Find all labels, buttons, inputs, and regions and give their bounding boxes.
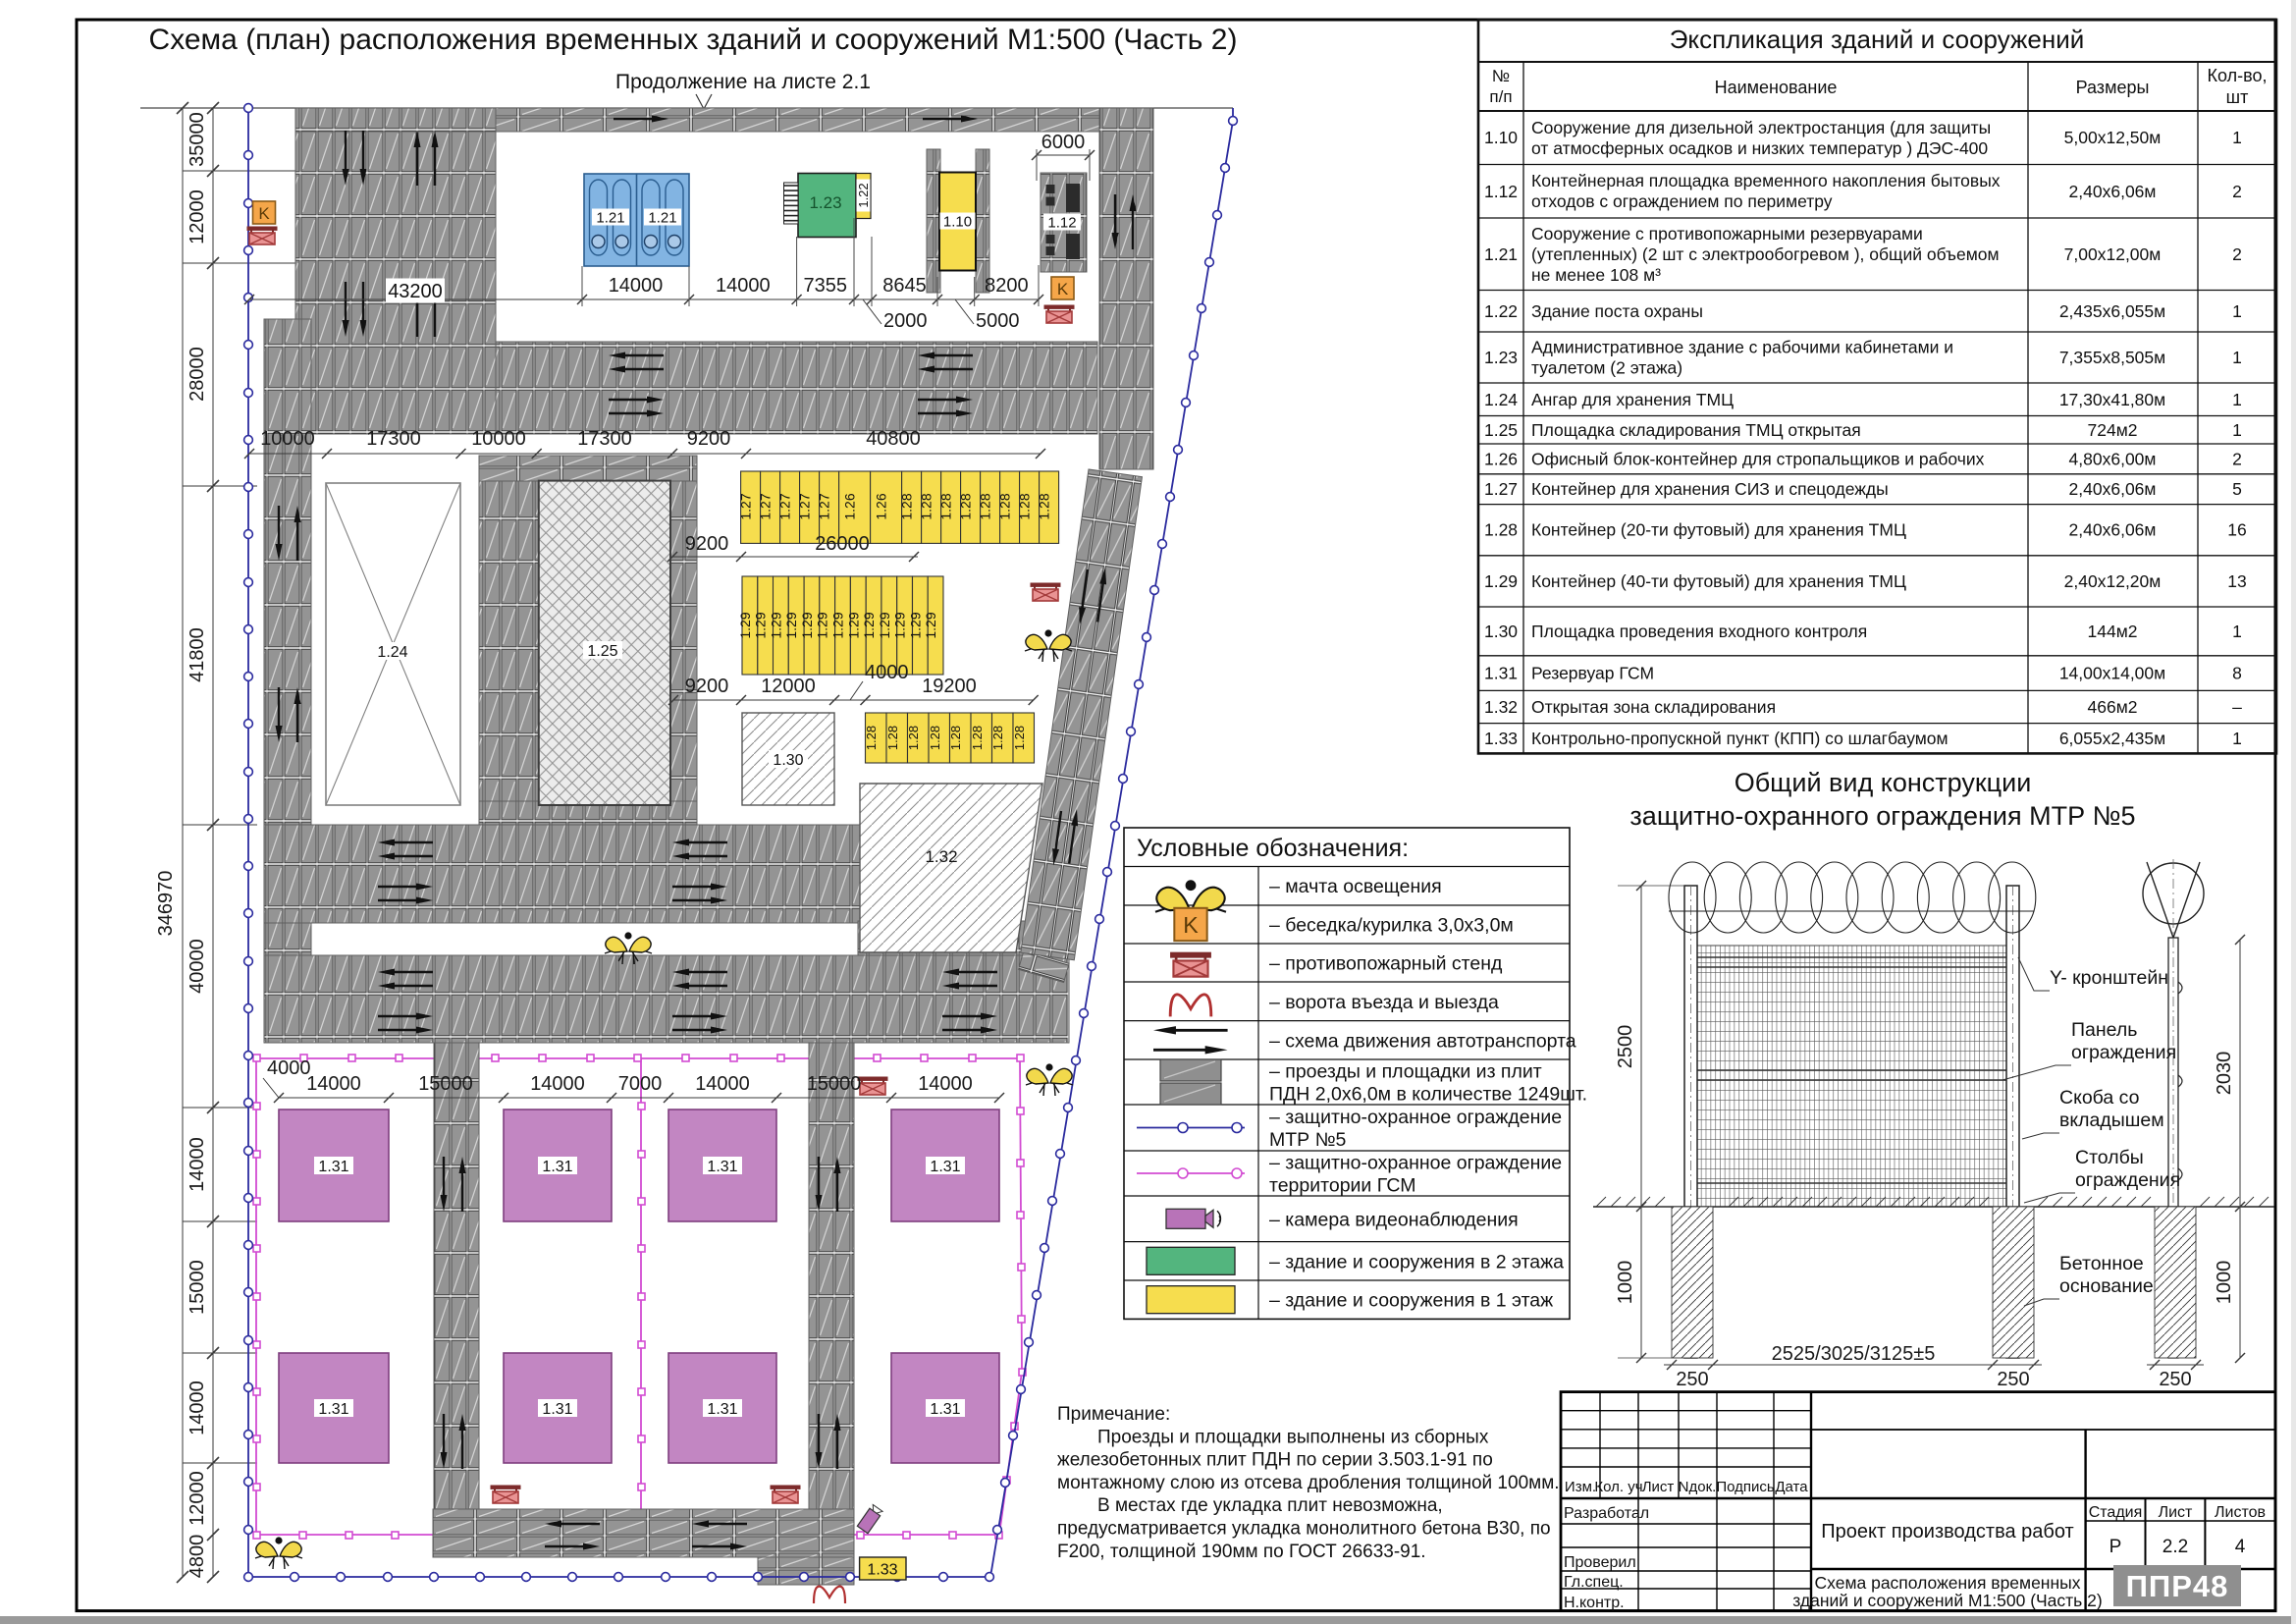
svg-text:– ворота въезда и выезда: – ворота въезда и выезда (1269, 992, 1499, 1013)
svg-text:шт: шт (2226, 87, 2249, 107)
svg-text:1.22: 1.22 (1484, 301, 1518, 321)
svg-text:40000: 40000 (187, 939, 208, 994)
svg-text:Y- кронштейн: Y- кронштейн (2050, 967, 2168, 989)
svg-text:5: 5 (2232, 479, 2242, 499)
svg-text:1.27: 1.27 (777, 493, 793, 519)
svg-text:п/п: п/п (1489, 87, 1512, 106)
svg-text:7355: 7355 (804, 275, 848, 297)
svg-text:1.31: 1.31 (542, 1159, 572, 1175)
svg-text:2030: 2030 (2214, 1052, 2235, 1096)
svg-text:15000: 15000 (807, 1073, 862, 1095)
svg-text:2500: 2500 (1615, 1025, 1636, 1069)
svg-text:1: 1 (2232, 128, 2242, 147)
svg-text:1.29: 1.29 (877, 612, 892, 638)
svg-text:28000: 28000 (187, 347, 208, 402)
svg-text:Схема (план) расположения врем: Схема (план) расположения временных здан… (149, 24, 1238, 56)
svg-text:1.28: 1.28 (1037, 493, 1052, 519)
svg-text:14000: 14000 (609, 275, 664, 297)
svg-text:Н.контр.: Н.контр. (1564, 1595, 1625, 1611)
svg-text:1.12: 1.12 (1047, 214, 1076, 231)
svg-text:14,00х14,00м: 14,00х14,00м (2059, 664, 2165, 683)
svg-text:2,40х6,06м: 2,40х6,06м (2069, 520, 2157, 540)
svg-text:1.28: 1.28 (948, 726, 963, 750)
svg-text:1.29: 1.29 (892, 612, 908, 638)
svg-text:4: 4 (2235, 1537, 2246, 1557)
svg-text:1.31: 1.31 (318, 1159, 348, 1175)
svg-text:4000: 4000 (865, 662, 909, 683)
svg-text:1.31: 1.31 (707, 1401, 737, 1418)
svg-text:1.29: 1.29 (907, 612, 923, 638)
svg-text:Офисный блок-контейнер для стр: Офисный блок-контейнер для стропальщиков… (1531, 449, 1985, 468)
svg-text:Проект производства работ: Проект производства работ (1821, 1521, 2073, 1543)
svg-text:туалетом (2 этажа): туалетом (2 этажа) (1531, 358, 1682, 378)
svg-text:Резервуар ГСМ: Резервуар ГСМ (1531, 664, 1654, 683)
svg-text:1.28: 1.28 (885, 726, 900, 750)
svg-text:2,40х6,06м: 2,40х6,06м (2069, 182, 2157, 201)
svg-text:466м2: 466м2 (2088, 697, 2138, 717)
svg-text:1.29: 1.29 (923, 612, 938, 638)
svg-text:Подпись: Подпись (1716, 1479, 1775, 1495)
svg-text:1.27: 1.27 (1484, 479, 1518, 499)
svg-text:14000: 14000 (306, 1073, 361, 1095)
svg-text:– здание и сооружения в 1 этаж: – здание и сооружения в 1 этаж (1269, 1290, 1553, 1312)
svg-text:Площадка складирования ТМЦ отк: Площадка складирования ТМЦ открытая (1531, 420, 1861, 440)
svg-text:1.25: 1.25 (1484, 420, 1518, 440)
svg-text:9200: 9200 (685, 676, 729, 697)
svg-text:1.27: 1.27 (758, 493, 774, 519)
svg-text:1.32: 1.32 (1484, 697, 1518, 717)
svg-text:Размеры: Размеры (2076, 78, 2150, 97)
svg-text:14000: 14000 (187, 1380, 208, 1435)
svg-text:1: 1 (2232, 348, 2242, 367)
svg-text:Листов: Листов (2215, 1504, 2266, 1521)
svg-text:Контейнер (20-ти футовый) для: Контейнер (20-ти футовый) для хранения Т… (1531, 520, 1906, 540)
svg-text:1.26: 1.26 (874, 493, 889, 519)
svg-text:1.25: 1.25 (587, 643, 617, 660)
svg-text:1.31: 1.31 (318, 1401, 348, 1418)
svg-text:8645: 8645 (882, 275, 927, 297)
svg-text:Панель: Панель (2071, 1019, 2137, 1041)
svg-text:1.29: 1.29 (799, 612, 815, 638)
svg-text:– защитно-охранное ограждение: – защитно-охранное ограждение (1269, 1153, 1562, 1174)
svg-text:12000: 12000 (761, 676, 816, 697)
svg-text:41800: 41800 (187, 627, 208, 682)
svg-text:4,80х6,00м: 4,80х6,00м (2069, 449, 2157, 468)
svg-text:4800: 4800 (187, 1535, 208, 1579)
svg-text:защитно-охранного ограждения М: защитно-охранного ограждения МТР №5 (1629, 801, 2135, 831)
svg-text:1.26: 1.26 (1484, 449, 1518, 468)
svg-text:1.33: 1.33 (1484, 729, 1518, 748)
svg-text:1.10: 1.10 (1484, 128, 1518, 147)
svg-text:– здание и сооружения в 2 этаж: – здание и сооружения в 2 этажа (1269, 1251, 1564, 1272)
svg-text:(утепленных) (2 шт с электрооб: (утепленных) (2 шт с электрообогревом ),… (1531, 244, 2000, 264)
svg-text:– проезды и площадки из плит: – проезды и площадки из плит (1269, 1061, 1542, 1083)
svg-text:1.21: 1.21 (1484, 244, 1518, 264)
svg-text:1.30: 1.30 (773, 752, 803, 769)
svg-text:1.23: 1.23 (809, 193, 841, 212)
svg-text:9200: 9200 (685, 533, 729, 555)
svg-text:2,40х12,20м: 2,40х12,20м (2064, 571, 2162, 591)
svg-text:4000: 4000 (267, 1057, 311, 1079)
svg-text:1.29: 1.29 (815, 612, 830, 638)
svg-text:Кол-во,: Кол-во, (2208, 66, 2268, 85)
svg-text:Административное здание с рабо: Административное здание с рабочими кабин… (1531, 338, 1953, 357)
svg-text:Контейнерная площадка временно: Контейнерная площадка временного накопле… (1531, 171, 2001, 190)
svg-text:16: 16 (2227, 520, 2246, 540)
svg-text:1.29: 1.29 (1484, 571, 1518, 591)
svg-text:35000: 35000 (187, 112, 208, 167)
svg-text:– защитно-охранное ограждение: – защитно-охранное ограждение (1269, 1107, 1562, 1128)
svg-text:Стадия: Стадия (2089, 1504, 2143, 1521)
svg-text:1: 1 (2232, 420, 2242, 440)
svg-text:43200: 43200 (388, 281, 443, 302)
svg-text:Столбы: Столбы (2075, 1147, 2144, 1168)
svg-text:14000: 14000 (530, 1073, 585, 1095)
svg-text:Кол. уч: Кол. уч (1594, 1479, 1642, 1495)
svg-text:1.27: 1.27 (817, 493, 832, 519)
svg-text:ограждения: ограждения (2075, 1169, 2180, 1191)
svg-text:1.27: 1.27 (738, 493, 754, 519)
svg-text:7,00х12,00м: 7,00х12,00м (2064, 244, 2162, 264)
svg-text:15000: 15000 (418, 1073, 473, 1095)
svg-text:2.2: 2.2 (2163, 1537, 2188, 1557)
svg-text:1.29: 1.29 (737, 612, 753, 638)
svg-text:14000: 14000 (695, 1073, 750, 1095)
svg-text:вкладышем: вкладышем (2059, 1110, 2164, 1131)
svg-text:1.24: 1.24 (377, 644, 407, 661)
svg-text:Лист: Лист (1642, 1479, 1675, 1495)
svg-text:1.31: 1.31 (707, 1159, 737, 1175)
svg-text:1.31: 1.31 (542, 1401, 572, 1418)
svg-text:1.28: 1.28 (928, 726, 942, 750)
svg-text:1.31: 1.31 (930, 1401, 960, 1418)
svg-text:Nдок.: Nдок. (1679, 1479, 1717, 1495)
svg-text:Контейнер для хранения СИЗ и с: Контейнер для хранения СИЗ и спецодежды (1531, 479, 1889, 499)
svg-text:12000: 12000 (187, 1471, 208, 1526)
svg-text:Открытая зона складирования: Открытая зона складирования (1531, 697, 1776, 717)
svg-text:Р: Р (2109, 1537, 2122, 1557)
svg-text:250: 250 (2159, 1369, 2191, 1390)
svg-text:Схема расположения временных: Схема расположения временных (1815, 1573, 2081, 1593)
svg-text:724м2: 724м2 (2088, 420, 2138, 440)
svg-text:монтажному слою из отсева дроб: монтажному слою из отсева дробления толщ… (1057, 1473, 1560, 1493)
svg-text:Примечание:: Примечание: (1057, 1404, 1170, 1425)
svg-text:6,055х2,435м: 6,055х2,435м (2059, 729, 2165, 748)
svg-text:1.27: 1.27 (797, 493, 813, 519)
svg-text:1.12: 1.12 (1484, 182, 1518, 201)
svg-text:7,355х8,505м: 7,355х8,505м (2059, 348, 2165, 367)
svg-text:отходов с ограждением по перим: отходов с ограждением по периметру (1531, 191, 1833, 211)
svg-text:– схема движения автотранспорт: – схема движения автотранспорта (1269, 1030, 1576, 1052)
svg-text:2,435х6,055м: 2,435х6,055м (2059, 301, 2165, 321)
svg-text:В местах где укладка плит нево: В местах где укладка плит невозможна, (1097, 1495, 1443, 1516)
svg-text:ограждения: ограждения (2071, 1042, 2176, 1063)
svg-text:1.28: 1.28 (906, 726, 921, 750)
svg-text:основание: основание (2059, 1275, 2154, 1297)
svg-text:5,00х12,50м: 5,00х12,50м (2064, 128, 2162, 147)
svg-text:346970: 346970 (155, 871, 177, 937)
svg-text:не менее 108 м³: не менее 108 м³ (1531, 265, 1661, 285)
svg-text:Ангар для хранения ТМЦ: Ангар для хранения ТМЦ (1531, 390, 1734, 409)
svg-text:Продолжение на листе 2.1: Продолжение на листе 2.1 (615, 71, 871, 93)
svg-text:1: 1 (2232, 622, 2242, 641)
svg-text:Общий вид конструкции: Общий вид конструкции (1735, 768, 2032, 797)
svg-text:Контрольно-пропускной пункт (К: Контрольно-пропускной пункт (КПП) со шла… (1531, 729, 1949, 748)
svg-text:Здание поста охраны: Здание поста охраны (1531, 301, 1703, 321)
svg-text:1.28: 1.28 (958, 493, 974, 519)
svg-text:– камера видеонаблюдения: – камера видеонаблюдения (1269, 1209, 1519, 1230)
svg-text:МТР №5: МТР №5 (1269, 1129, 1346, 1151)
svg-text:1.28: 1.28 (997, 493, 1013, 519)
svg-text:1.28: 1.28 (864, 726, 879, 750)
svg-text:1.28: 1.28 (970, 726, 985, 750)
svg-text:Проверил: Проверил (1564, 1554, 1636, 1571)
svg-text:1: 1 (2232, 301, 2242, 321)
svg-text:26000: 26000 (815, 533, 870, 555)
svg-text:Сооружение с противопожарными: Сооружение с противопожарными резервуара… (1531, 224, 1923, 244)
svg-text:7000: 7000 (618, 1073, 663, 1095)
svg-text:250: 250 (1676, 1369, 1708, 1390)
svg-text:1.28: 1.28 (919, 493, 934, 519)
svg-text:Наименование: Наименование (1715, 78, 1838, 97)
svg-text:1.21: 1.21 (596, 209, 624, 226)
svg-text:9200: 9200 (687, 428, 731, 450)
svg-text:40800: 40800 (866, 428, 921, 450)
svg-text:1.28: 1.28 (1017, 493, 1033, 519)
svg-text:8200: 8200 (985, 275, 1029, 297)
svg-text:1.29: 1.29 (768, 612, 783, 638)
svg-text:1.22: 1.22 (856, 183, 871, 207)
svg-text:1.10: 1.10 (943, 213, 972, 230)
svg-text:Изм.: Изм. (1565, 1479, 1596, 1495)
svg-text:– беседка/курилка 3,0х3,0м: – беседка/курилка 3,0х3,0м (1269, 915, 1514, 937)
svg-text:– мачта освещения: – мачта освещения (1269, 876, 1442, 897)
svg-text:зданий и сооружений М1:500 (Ча: зданий и сооружений М1:500 (Часть 2) (1792, 1591, 2102, 1610)
svg-text:14000: 14000 (716, 275, 771, 297)
svg-text:1.28: 1.28 (978, 493, 993, 519)
svg-text:1.21: 1.21 (648, 209, 676, 226)
svg-text:2: 2 (2232, 244, 2242, 264)
svg-text:– противопожарный стенд: – противопожарный стенд (1269, 953, 1503, 975)
svg-text:Гл.спец.: Гл.спец. (1564, 1574, 1624, 1591)
svg-text:1.28: 1.28 (899, 493, 915, 519)
svg-text:19200: 19200 (922, 676, 977, 697)
svg-text:территории ГСМ: территории ГСМ (1269, 1175, 1416, 1197)
svg-text:Экспликация зданий и сооружени: Экспликация зданий и сооружений (1670, 25, 2085, 54)
svg-text:1.28: 1.28 (938, 493, 954, 519)
svg-text:1.28: 1.28 (1012, 726, 1027, 750)
svg-text:Дата: Дата (1775, 1479, 1808, 1495)
svg-text:144м2: 144м2 (2088, 622, 2138, 641)
svg-text:1000: 1000 (1615, 1261, 1636, 1305)
svg-text:1.24: 1.24 (1484, 390, 1518, 409)
svg-text:Проезды и площадки выполнены и: Проезды и площадки выполнены из сборных (1097, 1427, 1489, 1447)
svg-text:Контейнер (40-ти футовый) для: Контейнер (40-ти футовый) для хранения Т… (1531, 571, 1906, 591)
svg-text:№: № (1492, 67, 1510, 85)
svg-text:1.26: 1.26 (842, 493, 858, 519)
svg-text:10000: 10000 (471, 428, 526, 450)
svg-text:14000: 14000 (187, 1137, 208, 1192)
svg-text:17300: 17300 (577, 428, 632, 450)
svg-text:1.28: 1.28 (1484, 520, 1518, 540)
svg-text:1.31: 1.31 (1484, 664, 1518, 683)
svg-text:1.29: 1.29 (783, 612, 799, 638)
svg-text:2,40х6,06м: 2,40х6,06м (2069, 479, 2157, 499)
svg-text:2: 2 (2232, 182, 2242, 201)
svg-text:1: 1 (2232, 390, 2242, 409)
svg-text:K: K (1183, 912, 1199, 938)
svg-text:Разработал: Разработал (1564, 1505, 1649, 1522)
svg-text:1.33: 1.33 (867, 1562, 897, 1579)
svg-text:8: 8 (2232, 664, 2242, 683)
svg-text:250: 250 (1997, 1369, 2029, 1390)
svg-text:1.29: 1.29 (845, 612, 861, 638)
svg-text:1.29: 1.29 (830, 612, 846, 638)
svg-text:17,30х41,80м: 17,30х41,80м (2059, 390, 2165, 409)
svg-text:1: 1 (2232, 729, 2242, 748)
svg-text:5000: 5000 (976, 310, 1020, 332)
svg-text:1.32: 1.32 (925, 847, 957, 866)
svg-text:железобетонных плит ПДН по сер: железобетонных плит ПДН по серии 3.503.1… (1057, 1450, 1493, 1471)
svg-text:1000: 1000 (2214, 1261, 2235, 1305)
svg-text:от атмосферных осадков и низки: от атмосферных осадков и низких температ… (1531, 138, 1988, 158)
svg-text:1.31: 1.31 (930, 1159, 960, 1175)
svg-text:1.29: 1.29 (753, 612, 769, 638)
svg-text:1.28: 1.28 (990, 726, 1005, 750)
svg-text:1.29: 1.29 (861, 612, 877, 638)
svg-text:1.23: 1.23 (1484, 348, 1518, 367)
svg-text:F200, толщиной 190мм по ГОСТ 2: F200, толщиной 190мм по ГОСТ 26633-91. (1057, 1542, 1426, 1562)
svg-text:Сооружение для дизельной элект: Сооружение для дизельной электростанция … (1531, 118, 1991, 137)
svg-text:14000: 14000 (918, 1073, 973, 1095)
svg-text:17300: 17300 (366, 428, 421, 450)
svg-text:1.30: 1.30 (1484, 622, 1518, 641)
svg-text:13: 13 (2227, 571, 2246, 591)
svg-text:–: – (2232, 697, 2242, 717)
svg-text:Площадка проведения входного к: Площадка проведения входного контроля (1531, 622, 1867, 641)
svg-text:12000: 12000 (187, 189, 208, 244)
svg-text:6000: 6000 (1041, 132, 1086, 153)
svg-text:предусматривается укладка моно: предусматривается укладка монолитного бе… (1057, 1519, 1551, 1540)
svg-text:Лист: Лист (2159, 1504, 2193, 1521)
svg-text:15000: 15000 (187, 1260, 208, 1315)
svg-text:2525/3025/3125±5: 2525/3025/3125±5 (1772, 1343, 1936, 1365)
svg-text:2: 2 (2232, 449, 2242, 468)
svg-text:ППР48: ППР48 (2126, 1569, 2229, 1603)
svg-text:Условные обозначения:: Условные обозначения: (1137, 835, 1409, 862)
svg-text:2000: 2000 (883, 310, 928, 332)
svg-text:ПДН 2,0х6,0м в количестве 1249: ПДН 2,0х6,0м в количестве 1249шт. (1269, 1084, 1587, 1106)
svg-text:Скоба со: Скоба со (2059, 1087, 2140, 1109)
svg-text:Бетонное: Бетонное (2059, 1253, 2144, 1274)
svg-text:10000: 10000 (260, 428, 315, 450)
